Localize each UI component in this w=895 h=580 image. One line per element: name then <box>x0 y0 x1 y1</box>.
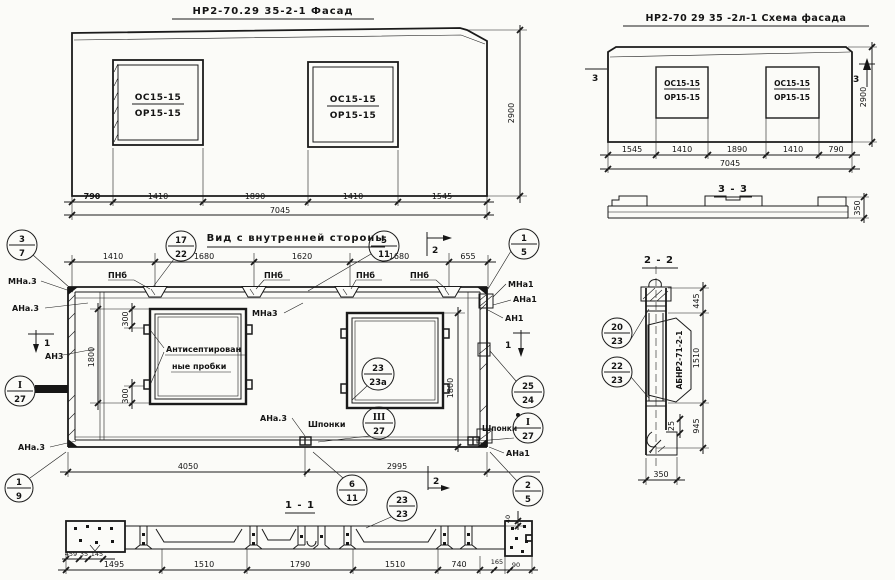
dim-label: 1410 <box>343 192 363 201</box>
dim-label: 2995 <box>387 462 407 471</box>
dim-label: 1510 <box>385 560 405 569</box>
window-mark-top: ОС15-15 <box>774 79 810 88</box>
callout-20-23: 20 23 <box>602 318 632 348</box>
callout-top: 22 <box>611 362 623 372</box>
callout-22-23: 22 23 <box>602 357 632 387</box>
section-marker-2-bottom: 2 <box>428 466 450 491</box>
section-1-1: 1 - 1 459 35 145 1495 1510 1790 1510 740… <box>58 500 538 574</box>
callout-5-11: 5 11 <box>369 231 399 261</box>
part-label: АНа1 <box>513 295 537 304</box>
dim-total-label: 7045 <box>720 159 740 168</box>
facade-title: НР2-70.29 35-2-1 Фасад <box>193 6 354 17</box>
section-title: 2 - 2 <box>644 255 674 266</box>
bottom-anchor <box>646 432 677 455</box>
extension-lines <box>90 309 150 403</box>
callout-bottom: 23а <box>369 378 387 388</box>
dim-label: 1495 <box>104 560 124 569</box>
part-label: АНа1 <box>506 449 530 458</box>
dim-label: 445 <box>692 293 701 308</box>
facade-window-2: ОС15-15 ОР15-15 <box>308 62 398 147</box>
small-dim-label: 35 <box>80 550 88 558</box>
dim-label: 1410 <box>103 252 123 261</box>
callout-23-23a: 23 23а <box>362 358 394 390</box>
dim-label: 1410 <box>672 145 692 154</box>
callout-top: 23 <box>372 364 384 374</box>
part-label-flag <box>648 318 691 402</box>
label-leaders <box>41 281 511 453</box>
plug-tabs <box>144 325 252 389</box>
frame-hatch <box>114 64 118 142</box>
part-label-rotated: АБНР2-71-2-1 <box>675 331 684 390</box>
callout-I-27-left: I 27 <box>5 376 35 406</box>
small-dim-label: 145 <box>91 550 103 558</box>
part-label: МНа3 <box>252 309 278 318</box>
channel-groove <box>307 541 316 546</box>
marker-label: 1 <box>44 339 50 349</box>
marker-label: 2 <box>432 246 438 256</box>
dim-label: 790 <box>84 192 101 201</box>
window-frame-inner <box>352 318 438 403</box>
callout-1-5: 1 5 <box>509 229 539 259</box>
schema-title: НР2-70 29 35 -2л-1 Схема фасада <box>646 13 847 24</box>
pnb-label: ПНб <box>108 270 127 280</box>
panel-top-inner-line <box>610 52 850 57</box>
shponki-label: Шпонки <box>308 420 345 429</box>
window-frame <box>347 313 443 408</box>
callout-top: 25 <box>522 382 534 392</box>
inner-window-1: Антисептирован ные пробки <box>144 309 252 404</box>
callout-top: 17 <box>175 236 187 246</box>
embed-parts-right <box>477 294 493 443</box>
dim-label: 945 <box>692 418 701 433</box>
marker-arrowhead <box>33 344 39 353</box>
callout-6-11: 6 11 <box>337 475 367 505</box>
pnb-label: ПНб <box>410 270 429 280</box>
window-mark-bottom: ОР15-15 <box>330 111 377 121</box>
callout-bottom: 7 <box>19 249 25 259</box>
blueprint-sheet: НР2-70.29 35-2-1 Фасад ОС15-15 ОР15-15 О… <box>0 0 895 580</box>
section-marker-1-left: 1 <box>28 330 54 353</box>
dim-label: 350 <box>853 200 862 215</box>
dim-label: 1680 <box>389 252 409 261</box>
window-frame <box>150 309 246 404</box>
section-marker-2-top: 2 <box>427 232 452 256</box>
dim-label: 350 <box>653 470 668 479</box>
marker-label: 1 <box>505 341 511 351</box>
height-extension-lines <box>468 30 527 196</box>
dim-label: 25 <box>667 421 676 431</box>
section-title: 1 - 1 <box>285 500 315 511</box>
callout-bottom: 22 <box>175 250 187 260</box>
dim-label: 790 <box>828 145 843 154</box>
part-label: АНа.3 <box>18 443 45 452</box>
dim-label: 1800 <box>446 378 455 398</box>
panel-top-inner-line <box>74 35 485 44</box>
recess-trapezoids <box>156 529 436 542</box>
callout-top: 6 <box>349 480 355 490</box>
dim-label: 655 <box>460 252 475 261</box>
inner-view-title: Вид с внутренней стороны <box>207 233 386 244</box>
dim-label: 1545 <box>432 192 452 201</box>
callout-bottom: 9 <box>16 492 22 502</box>
window-frame-inner2 <box>355 321 435 400</box>
callout-1-9: 1 9 <box>5 474 33 502</box>
window-mark-bottom: ОР15-15 <box>774 93 810 102</box>
callout-top: I <box>526 418 530 428</box>
marker-arrowhead <box>441 485 450 491</box>
plugs-label-line1: Антисептирован <box>166 345 241 354</box>
window-mark-bottom: ОР15-15 <box>664 93 700 102</box>
pnb-label: ПНб <box>356 270 375 280</box>
inner-window-2 <box>341 313 449 408</box>
facade-window-1: ОС15-15 ОР15-15 <box>113 60 203 145</box>
section-title: 3 - 3 <box>718 184 748 195</box>
window-frame-inner2 <box>158 317 238 396</box>
marker-label: 2 <box>433 477 439 487</box>
callout-top: III <box>373 413 386 423</box>
callout-23-23: 23 23 <box>387 491 417 521</box>
plug-tabs <box>341 329 449 393</box>
window-mark-top: ОС15-15 <box>330 95 377 105</box>
left-end-block <box>66 521 125 552</box>
callout-17-22: 17 22 <box>166 231 196 261</box>
callout-top: 2 <box>525 481 531 491</box>
shponki-label: Шпонки <box>482 424 517 433</box>
part-label: АН1 <box>505 314 524 323</box>
dim-label: 1510 <box>194 560 214 569</box>
callout-bottom: 5 <box>521 248 527 258</box>
section-2-2: 2 - 2 АБНР2-71-2-1 445 1510 945 25 350 2… <box>602 255 709 485</box>
callout-bottom: 24 <box>522 396 534 406</box>
panel-outline <box>608 47 852 142</box>
part-label: АНа.3 <box>12 304 39 313</box>
window-mark-top: ОС15-15 <box>664 79 700 88</box>
callout-bottom: 27 <box>373 427 385 437</box>
inner-view-drawing: Вид с внутренней стороны 1410 1680 1620 … <box>8 232 540 491</box>
dim-label: 1620 <box>292 252 312 261</box>
marker-arrowhead <box>518 348 524 357</box>
callout-top: 20 <box>611 323 623 333</box>
dim-label: 740 <box>451 560 466 569</box>
small-dim-label: 165 <box>491 558 503 566</box>
window-frame-inner <box>155 314 241 399</box>
callout-bottom: 23 <box>396 510 408 520</box>
marker-label: 3 <box>853 75 859 85</box>
dim-label: 1790 <box>290 560 310 569</box>
callout-bottom: 5 <box>525 495 531 505</box>
callout-III-27: III 27 <box>363 407 395 439</box>
lifting-loop <box>649 280 662 288</box>
callout-top: 3 <box>19 235 25 245</box>
key-bar <box>35 385 68 393</box>
callout-bottom: 11 <box>346 494 358 504</box>
small-dim-label: 90 <box>512 561 520 569</box>
part-label: АНа.3 <box>260 414 287 423</box>
callout-25-24: 25 24 <box>512 376 544 408</box>
callout-bottom: 23 <box>611 376 623 386</box>
dim-label: 1890 <box>727 145 747 154</box>
section-marker-3-left: 3 <box>585 69 607 84</box>
small-dim-label: 459 <box>65 550 77 558</box>
pnb-label: ПНб <box>264 270 283 280</box>
plugs-label-line2: ные пробки <box>172 361 226 371</box>
callout-2-5: 2 5 <box>513 476 543 506</box>
dim-label: 300 <box>121 388 130 403</box>
section-3-3: 3 - 3 350 <box>608 184 869 223</box>
dim-label: 1890 <box>245 192 265 201</box>
facade-drawing: НР2-70.29 35-2-1 Фасад ОС15-15 ОР15-15 О… <box>64 6 527 220</box>
schema-window-2: ОС15-15 ОР15-15 <box>766 67 819 118</box>
marker-label: 3 <box>592 74 598 84</box>
callout-bottom: 27 <box>14 395 26 405</box>
part-label: МНа.3 <box>8 277 37 286</box>
height-label: 2900 <box>859 87 868 107</box>
dim-label: 300 <box>121 311 130 326</box>
plugs-leaders <box>151 331 246 383</box>
ribs <box>135 526 477 549</box>
callout-bottom: 23 <box>611 337 623 347</box>
callout-3-7: 3 7 <box>7 230 37 260</box>
dim-label: 1510 <box>692 348 701 368</box>
dim-label: 1410 <box>783 145 803 154</box>
callout-top: 1 <box>16 478 22 488</box>
schema-window-1: ОС15-15 ОР15-15 <box>656 67 708 118</box>
drawing-canvas: НР2-70.29 35-2-1 Фасад ОС15-15 ОР15-15 О… <box>0 0 895 580</box>
callout-top: 5 <box>381 236 387 246</box>
callout-I-27-right: I 27 <box>513 413 543 443</box>
window-mark-top: ОС15-15 <box>135 93 182 103</box>
dim-label: 1410 <box>148 192 168 201</box>
part-label: АН3 <box>45 352 63 361</box>
callout-top: I <box>18 381 22 391</box>
small-dim-label: 40 <box>504 515 512 523</box>
callout-top: 1 <box>521 234 527 244</box>
callout-bottom: 27 <box>522 432 534 442</box>
part-label: МНа1 <box>508 280 534 289</box>
height-label: 2900 <box>507 103 516 123</box>
marker-arrowhead <box>443 235 452 241</box>
dim-label: 1680 <box>194 252 214 261</box>
dim-label: 4050 <box>178 462 198 471</box>
window-mark-bottom: ОР15-15 <box>135 109 182 119</box>
callout-bottom: 11 <box>378 250 390 260</box>
dim-label: 1545 <box>622 145 642 154</box>
section-marker-1-right: 1 <box>505 330 530 357</box>
schema-drawing: НР2-70 29 35 -2л-1 Схема фасада ОС15-15 … <box>585 13 877 173</box>
callout-top: 23 <box>396 496 408 506</box>
dim-total-label: 7045 <box>270 206 290 215</box>
